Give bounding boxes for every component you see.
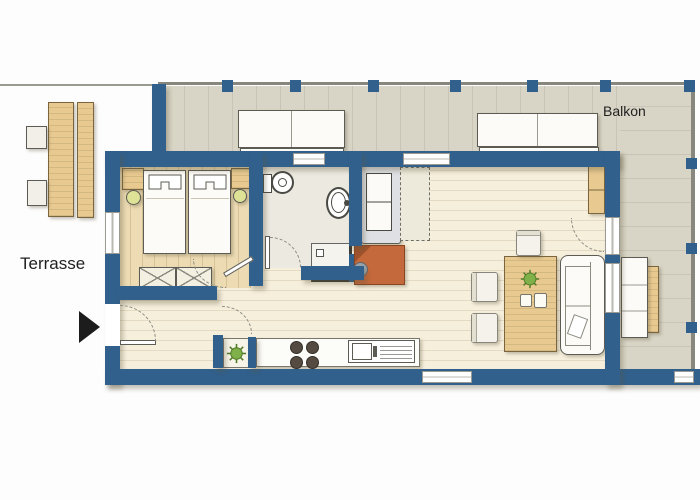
pillow-icon [193, 174, 227, 190]
railing-post [222, 80, 233, 92]
hob-burner [306, 341, 319, 354]
plant-icon [225, 342, 248, 365]
sofa [560, 255, 605, 355]
nightstand [231, 168, 251, 189]
sofa-bed-cushions [366, 173, 392, 231]
railing-post [368, 80, 379, 92]
balcony-label: Balkon [603, 103, 646, 119]
sofa-back [590, 262, 602, 350]
sink-drainer [380, 343, 412, 360]
niche-wall [213, 335, 223, 368]
kitchen-sink-unit [348, 340, 415, 363]
railing-post [686, 158, 697, 169]
balcony-railing-top [158, 82, 695, 85]
floor-plan: Terrasse Balkon [0, 0, 700, 500]
bed [143, 170, 186, 254]
bedside-lamp [126, 190, 141, 205]
bedroom-wall-bottom [118, 286, 217, 300]
balcony-side-wall [152, 84, 166, 153]
bedside-lamp [233, 189, 247, 203]
outer-wall-top [105, 151, 620, 167]
plant-box [223, 338, 249, 368]
table-setting [520, 294, 532, 307]
sink-basin [352, 343, 372, 360]
balcony-bench-cushions [477, 113, 598, 147]
dining-chair [516, 230, 541, 256]
railing-post [686, 322, 697, 333]
railing-post [450, 80, 461, 92]
railing-post [527, 80, 538, 92]
stove-corner-fold [355, 246, 371, 262]
terrace-table-plank [48, 102, 74, 217]
pillow-icon [148, 174, 182, 190]
balcony-door [605, 217, 620, 255]
bathroom-wall-bottom [301, 266, 364, 280]
outer-wall-left [105, 151, 120, 385]
shower-drain [316, 249, 324, 257]
hob-burner [290, 341, 303, 354]
entrance-opening [105, 304, 120, 346]
terrace-boundary-line [0, 84, 161, 86]
window [422, 371, 472, 383]
chair-back [472, 273, 477, 301]
terrace-label: Terrasse [20, 254, 85, 274]
railing-post [290, 80, 301, 92]
window [293, 153, 325, 165]
sideboard [588, 166, 605, 214]
window [105, 212, 120, 254]
dining-chair [471, 272, 498, 302]
balcony-bench-cushions [621, 257, 648, 338]
railing-post [686, 243, 697, 254]
balcony-bench-cushions [238, 110, 345, 148]
bedroom-wall [249, 151, 263, 286]
faucet-icon [373, 346, 377, 357]
window [605, 263, 620, 313]
window [674, 371, 694, 383]
foldout-bed-outline [400, 167, 430, 241]
dining-chair [471, 313, 498, 343]
terrace-chair [27, 180, 47, 206]
toilet-icon [278, 178, 287, 187]
terrace-chair [26, 126, 47, 149]
niche-wall [248, 337, 256, 368]
chair-back [517, 231, 540, 236]
terrace-table-plank [77, 102, 94, 218]
entrance-arrow-icon [79, 311, 100, 343]
railing-post [684, 80, 695, 92]
nightstand [122, 168, 144, 190]
hob-burner [290, 356, 303, 369]
window [403, 153, 450, 165]
table-setting [534, 293, 547, 308]
bathroom-wall-right [349, 151, 362, 246]
plant-icon [519, 268, 541, 290]
bed [188, 170, 231, 254]
hob-burner [306, 356, 319, 369]
balcony-bench-board [647, 266, 659, 333]
railing-post [600, 80, 611, 92]
chair-back [472, 314, 477, 342]
